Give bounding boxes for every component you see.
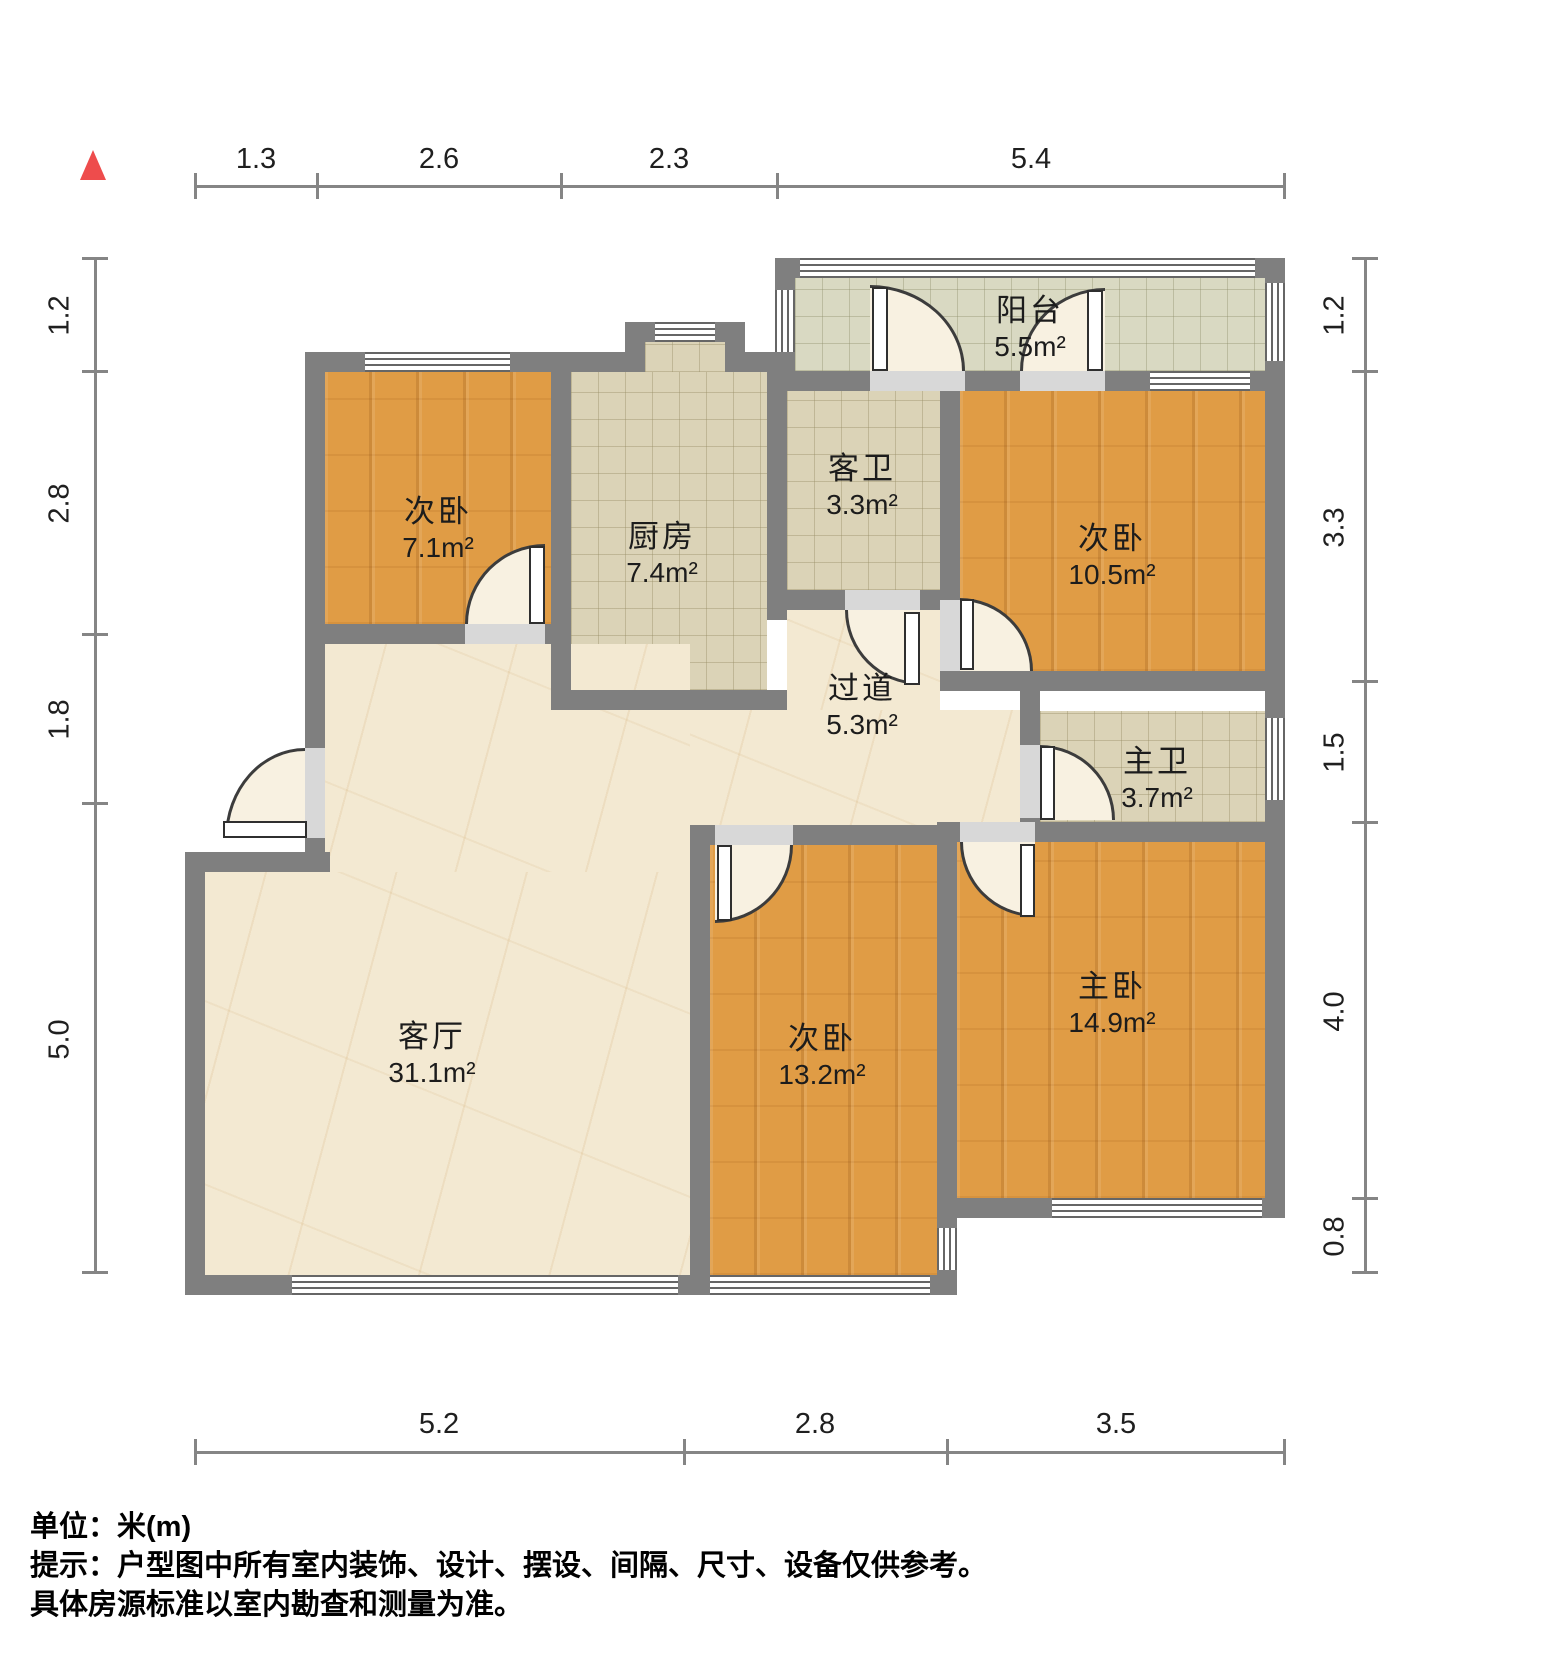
room-area: 14.9m²: [1012, 1006, 1212, 1040]
window: [655, 322, 715, 342]
dimension-value: 0.8: [1319, 1177, 1352, 1297]
room-label-hallway: 过道 5.3m²: [762, 670, 962, 742]
wall: [1265, 391, 1285, 1218]
room-name: 次卧: [722, 1020, 922, 1058]
room-name: 过道: [762, 670, 962, 708]
room-area: 5.3m²: [762, 708, 962, 742]
door-threshold: [940, 600, 960, 671]
door-threshold: [1020, 745, 1040, 818]
door-threshold: [845, 590, 920, 610]
wall: [725, 322, 745, 372]
room-label-balcony: 阳台 5.5m²: [930, 292, 1130, 364]
footer-notes: 单位：米(m) 提示：户型图中所有室内装饰、设计、摆设、间隔、尺寸、设备仅供参考…: [30, 1508, 987, 1625]
room-label-master-bedroom: 主卧 14.9m²: [1012, 968, 1212, 1040]
room-area: 5.5m²: [930, 330, 1130, 364]
room-name: 阳台: [930, 292, 1130, 330]
floor-plan-canvas: 阳台 5.5m² 次卧 7.1m² 厨房 7.4m² 客卫 3.3m² 次卧 1…: [0, 0, 1560, 1661]
room-label-bedroom-4: 次卧 13.2m²: [722, 1020, 922, 1092]
room-name: 客厅: [332, 1018, 532, 1056]
wall: [793, 825, 957, 845]
wall: [1105, 371, 1150, 391]
wall: [185, 852, 330, 872]
window: [1265, 718, 1285, 800]
wall: [305, 644, 325, 748]
door-panel: [872, 287, 888, 371]
dimension-value: 2.8: [44, 444, 77, 564]
dimension-value: 1.5: [1319, 693, 1352, 813]
room-area: 10.5m²: [1012, 558, 1212, 592]
dimension-value: 4.0: [1319, 952, 1352, 1072]
room-label-living-room: 客厅 31.1m²: [332, 1018, 532, 1090]
room-label-guest-bathroom: 客卫 3.3m²: [762, 450, 962, 522]
window: [1052, 1198, 1262, 1218]
wall: [1250, 371, 1285, 391]
room-area: 13.2m²: [722, 1058, 922, 1092]
door-panel: [960, 599, 974, 670]
wall: [185, 852, 205, 1295]
window: [292, 1275, 678, 1295]
door-threshold: [960, 822, 1035, 842]
dimension-value: 3.3: [1319, 468, 1352, 588]
window: [1265, 283, 1285, 361]
dimension-value: 1.2: [44, 256, 77, 376]
room-area: 7.4m²: [562, 556, 762, 590]
dimension-value: 2.6: [379, 143, 499, 176]
wall: [305, 624, 465, 644]
wall: [1020, 691, 1040, 745]
wall: [545, 624, 571, 644]
wall: [690, 825, 710, 1295]
dimension-value: 2.8: [755, 1408, 875, 1441]
wall: [937, 822, 957, 1295]
room-label-bedroom-3: 次卧 10.5m²: [1012, 520, 1212, 592]
door-threshold: [465, 624, 545, 644]
wall: [965, 371, 1020, 391]
dimension-value: 1.8: [44, 660, 77, 780]
wall: [305, 352, 325, 644]
room-area: 31.1m²: [332, 1056, 532, 1090]
room-name: 主卫: [1057, 743, 1257, 781]
unit-note: 单位：米(m): [30, 1508, 987, 1547]
window: [800, 258, 1255, 278]
wall: [940, 671, 1285, 691]
door-threshold: [870, 371, 965, 391]
window: [703, 1275, 930, 1295]
dimension-value: 1.3: [196, 143, 316, 176]
wall: [551, 690, 787, 710]
door-threshold: [305, 748, 325, 838]
wall: [625, 322, 645, 372]
wall: [1020, 822, 1285, 842]
window: [365, 352, 510, 372]
dimension-value: 1.2: [1319, 256, 1352, 376]
dimension-value: 2.3: [609, 143, 729, 176]
room-floor-living-upper: [325, 644, 690, 872]
room-name: 厨房: [562, 518, 762, 556]
north-arrow-icon: [80, 150, 106, 180]
dimension-value: 3.5: [1056, 1408, 1176, 1441]
window: [937, 1228, 957, 1270]
room-name: 次卧: [338, 493, 538, 531]
room-name: 主卧: [1012, 968, 1212, 1006]
room-area: 7.1m²: [338, 531, 538, 565]
wall: [775, 371, 870, 391]
door-threshold: [715, 825, 793, 845]
room-label-bedroom-2: 次卧 7.1m²: [338, 493, 538, 565]
room-area: 3.3m²: [762, 488, 962, 522]
entry-door-panel: [223, 821, 307, 838]
window: [775, 290, 795, 360]
disclaimer-line-2: 具体房源标准以室内勘查和测量为准。: [30, 1586, 987, 1625]
door-panel: [1020, 844, 1035, 917]
door-panel: [1040, 746, 1055, 820]
room-name: 次卧: [1012, 520, 1212, 558]
wall: [767, 590, 845, 610]
dimension-value: 5.4: [971, 143, 1091, 176]
room-label-master-bathroom: 主卫 3.7m²: [1057, 743, 1257, 815]
window: [1150, 371, 1250, 391]
room-name: 客卫: [762, 450, 962, 488]
door-threshold: [1020, 371, 1105, 391]
dimension-value: 5.2: [379, 1408, 499, 1441]
dimension-value: 5.0: [44, 980, 77, 1100]
room-floor-kitchen-notch: [645, 342, 725, 372]
disclaimer-line-1: 提示：户型图中所有室内装饰、设计、摆设、间隔、尺寸、设备仅供参考。: [30, 1547, 987, 1586]
door-panel: [717, 845, 732, 921]
room-area: 3.7m²: [1057, 781, 1257, 815]
wall: [745, 352, 795, 372]
room-label-kitchen: 厨房 7.4m²: [562, 518, 762, 590]
